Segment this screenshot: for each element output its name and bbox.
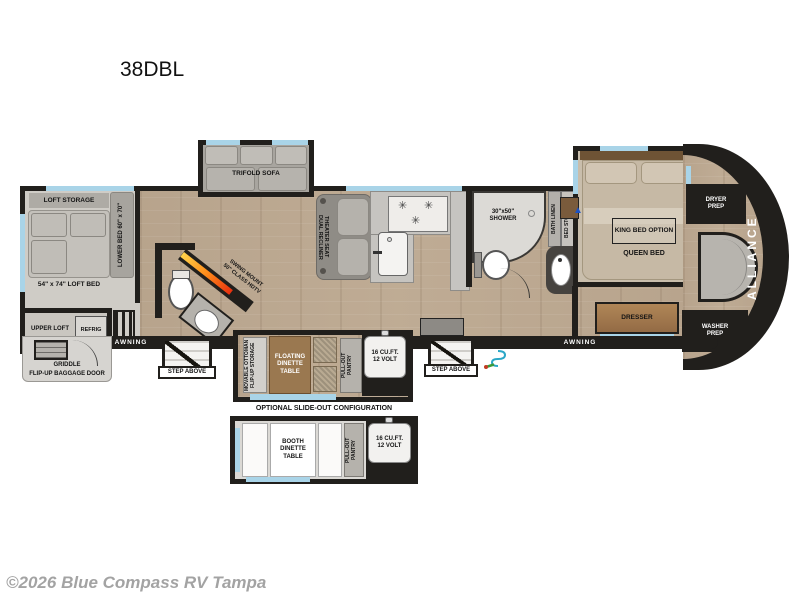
ottoman-label-line2: FLIP-UP STORAGE [250,338,256,392]
brand-logo-text: ALLIANCE [744,196,760,320]
booth-dinette-table: BOOTH DINETTE TABLE [270,423,316,477]
sink-drain-icon [387,237,392,242]
bath-faucet-icon [558,258,562,262]
dinette-chair [313,337,337,363]
griddle-icon [34,340,68,360]
sofa-back-cushion [205,146,238,165]
faucet-icon [373,251,382,254]
dinette-window [250,394,336,400]
entry-landing [420,318,464,336]
loft-cushion [31,240,67,274]
burner-icon: ✳ [398,199,407,212]
fridge-label-line1: 16 CU.FT. [371,350,398,357]
dinette-table: FLOATING DINETTE TABLE [269,336,311,394]
sofa-back-cushion [275,146,307,165]
optional-refrigerator-12v: 16 CU.FT. 12 VOLT [368,423,411,463]
theater-cushion [337,198,369,236]
theater-label-line2: THEATER SEAT [323,196,329,278]
queen-bed-label: QUEEN BED [600,249,688,260]
awning-label-right: AWNING [545,338,615,347]
shower-drain-icon [528,210,535,217]
kitchen-sink [378,232,408,276]
optional-fridge-line1: 16 CU.FT. [376,436,403,443]
hall-wall [572,286,578,336]
lower-bed-label: LOWER BED 60" x 70" [110,192,134,278]
booth-bench [318,423,342,477]
ottoman-label: MOVABLE OTTOMAN FLIP-UP STORAGE [243,337,267,393]
bath-toilet-tank [474,252,482,278]
tv-location-icon: ▲ [573,205,583,216]
step-above-label-left: STEP ABOVE [158,366,216,379]
griddle-label: GRIDDLE [22,362,112,370]
optional-config-title: OPTIONAL SLIDE-OUT CONFIGURATION [233,404,415,414]
wall-segment [155,246,162,318]
sofa-window [206,140,240,145]
wardrobe-curve [705,239,747,295]
headboard [580,151,693,160]
theater-label: DUAL RECLINER THEATER SEAT [317,196,336,278]
shower-label: 30"x50" SHOWER [478,204,528,228]
exterior-shower-icon [482,348,510,372]
wall-segment [155,243,195,250]
fridge-label-line2: 12 VOLT [373,357,397,364]
dryer-prep-label: DRYER PREP [686,184,746,224]
loft-pillow [31,213,67,237]
pantry-label: PULL-OUT PANTRY [340,338,362,393]
watermark: ©2026 Blue Compass RV Tampa [6,573,266,593]
step-above-label-right: STEP ABOVE [424,364,478,377]
upper-loft-label: UPPER LOFT [26,324,74,336]
bed-pillow [585,162,637,184]
theater-cushion [337,238,369,276]
loft-bed-label: 54" x 74" LOFT BED [24,279,114,290]
pantry-label-line2: PANTRY [347,339,353,392]
loft-top-window [46,186,134,191]
floorplan-page: 38DBL LOFT STORAGE 54" x 74" LOFT BED LO… [0,0,800,600]
optional-window [235,428,240,472]
dresser: DRESSER [595,302,679,334]
sofa-back-cushion [240,146,273,165]
sofa-label: TRIFOLD SOFA [206,168,306,180]
optional-pantry-label: PULL-OUT PANTRY [344,423,364,477]
loft-pillow [70,213,106,237]
king-bed-option-label: KING BED OPTION [612,218,676,244]
refrigerator-12v: 16 CU.FT. 12 VOLT [364,336,406,378]
optional-pantry-line2: PANTRY [351,424,357,476]
baggage-door-label: FLIP-UP BAGGAGE DOOR [12,370,122,379]
booth-bench [242,423,268,477]
burner-icon: ✳ [424,199,433,212]
burner-icon: ✳ [411,214,420,227]
dinette-chair [313,366,337,392]
page-title: 38DBL [120,58,184,82]
bedroom-window [573,160,578,194]
optional-bottom-window [246,477,310,482]
dryer-prep-text: DRYER PREP [698,197,734,211]
optional-fridge-line2: 12 VOLT [378,443,402,450]
loft-storage-label: LOFT STORAGE [29,193,109,208]
sofa-window [272,140,308,145]
half-bath-toilet-tank [172,270,190,279]
